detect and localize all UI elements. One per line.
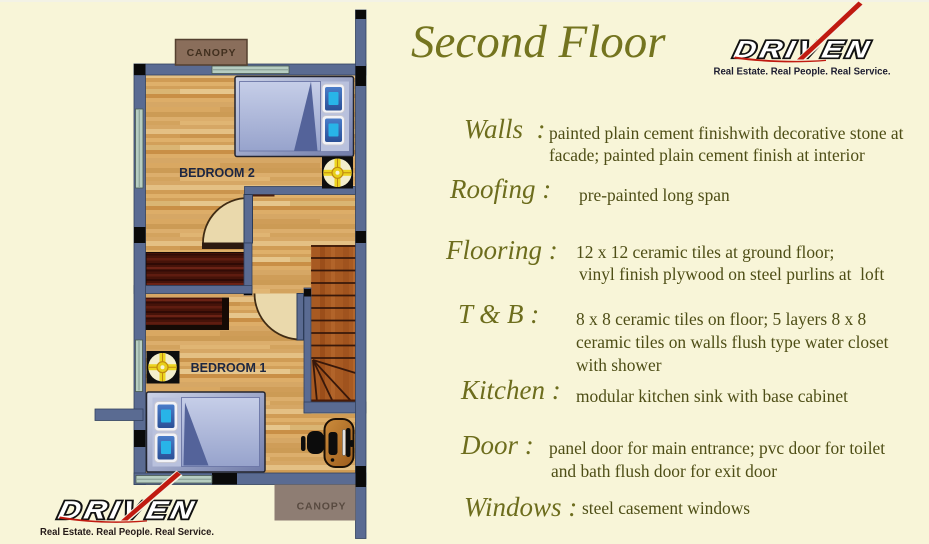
svg-text:BEDROOM 2: BEDROOM 2 xyxy=(179,166,255,180)
svg-text:BEDROOM 1: BEDROOM 1 xyxy=(191,361,267,375)
svg-text:Real Estate. Real People. Real: Real Estate. Real People. Real Service. xyxy=(40,527,214,538)
svg-text:CANOPY: CANOPY xyxy=(187,47,237,59)
svg-text:Real Estate. Real People. Real: Real Estate. Real People. Real Service. xyxy=(714,67,891,78)
svg-text:CANOPY: CANOPY xyxy=(297,501,347,513)
